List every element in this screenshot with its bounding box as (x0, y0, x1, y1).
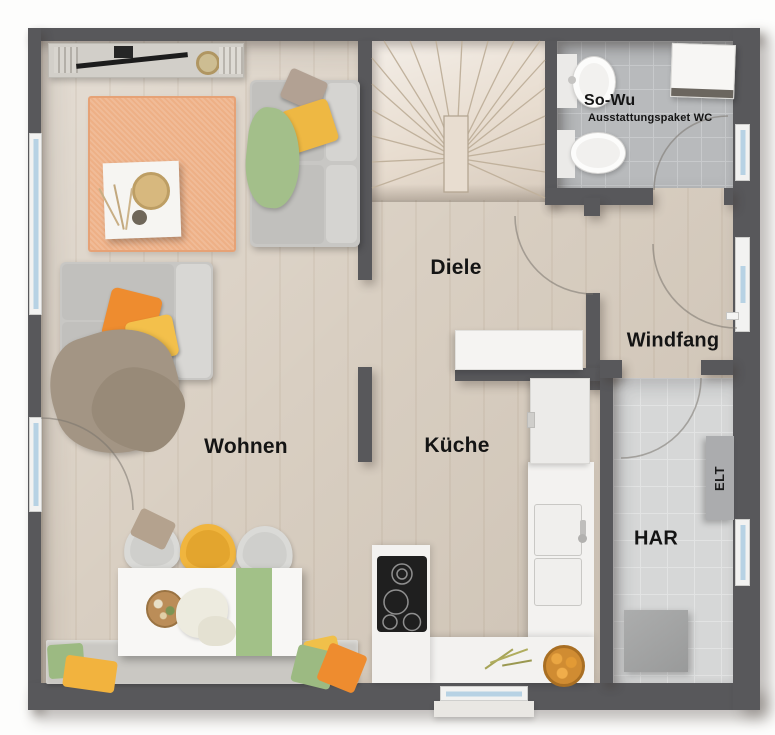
wall-left (28, 28, 41, 710)
sink-basin-2 (534, 558, 582, 606)
bathroom-package-detail: Ausstattungspaket WC (588, 112, 712, 124)
bath-washer (670, 43, 736, 99)
wall-bottom (28, 683, 760, 710)
room-label-wohnen: Wohnen (204, 435, 288, 459)
staircase-bottom-shadow (372, 184, 545, 202)
sink-basin-1 (534, 504, 582, 556)
toilet-seat (576, 138, 620, 168)
elt-cabinet: ELT (706, 436, 734, 520)
wall-bath-bottom-right (724, 188, 733, 205)
wall-stair-right (545, 41, 557, 205)
books-right (219, 47, 243, 74)
wall-kueche-har (600, 368, 613, 683)
wall-windfang-har-right (701, 360, 733, 375)
wall-stair-left (358, 41, 372, 280)
staircase-floor (372, 41, 545, 200)
fridge (530, 378, 590, 464)
sofa-backrest (326, 165, 357, 243)
toilet (570, 132, 626, 174)
floor-plan: ELT (0, 0, 775, 735)
elt-cabinet-label: ELT (713, 465, 728, 490)
bathroom-package-name: So-Wu (584, 92, 635, 110)
window-kitchen (440, 686, 528, 701)
wall-top (28, 28, 760, 41)
vase (132, 210, 147, 225)
terrace-door (29, 417, 42, 512)
tv-box (114, 46, 133, 58)
front-door-handle (726, 312, 739, 320)
bath-faucet-icon (568, 76, 576, 84)
har-appliance (624, 610, 688, 672)
window-left-living (29, 133, 42, 315)
dried-flowers-2 (198, 616, 236, 646)
diele-sideboard (455, 330, 583, 370)
fridge-handle (527, 412, 535, 428)
wall-diele-hinge-stub (584, 198, 600, 216)
table-runner (236, 568, 272, 656)
wall-windfang-har-left (600, 360, 622, 378)
wall-wohnen-mid (358, 367, 372, 462)
room-label-kueche: Küche (424, 434, 489, 458)
faucet-knob (578, 534, 587, 543)
books-left (54, 47, 78, 73)
room-label-windfang: Windfang (627, 330, 720, 353)
room-label-har: HAR (634, 528, 678, 551)
sofa-backrest (176, 264, 211, 378)
window-bathroom (735, 124, 750, 181)
gold-dish (196, 51, 220, 75)
bath-washer-front (671, 88, 733, 98)
kitchen-window-sill (434, 701, 534, 717)
room-label-diele: Diele (430, 256, 481, 280)
fruit-bowl (543, 645, 585, 687)
cooktop (377, 556, 427, 632)
tray (132, 172, 170, 210)
window-har (735, 519, 750, 586)
